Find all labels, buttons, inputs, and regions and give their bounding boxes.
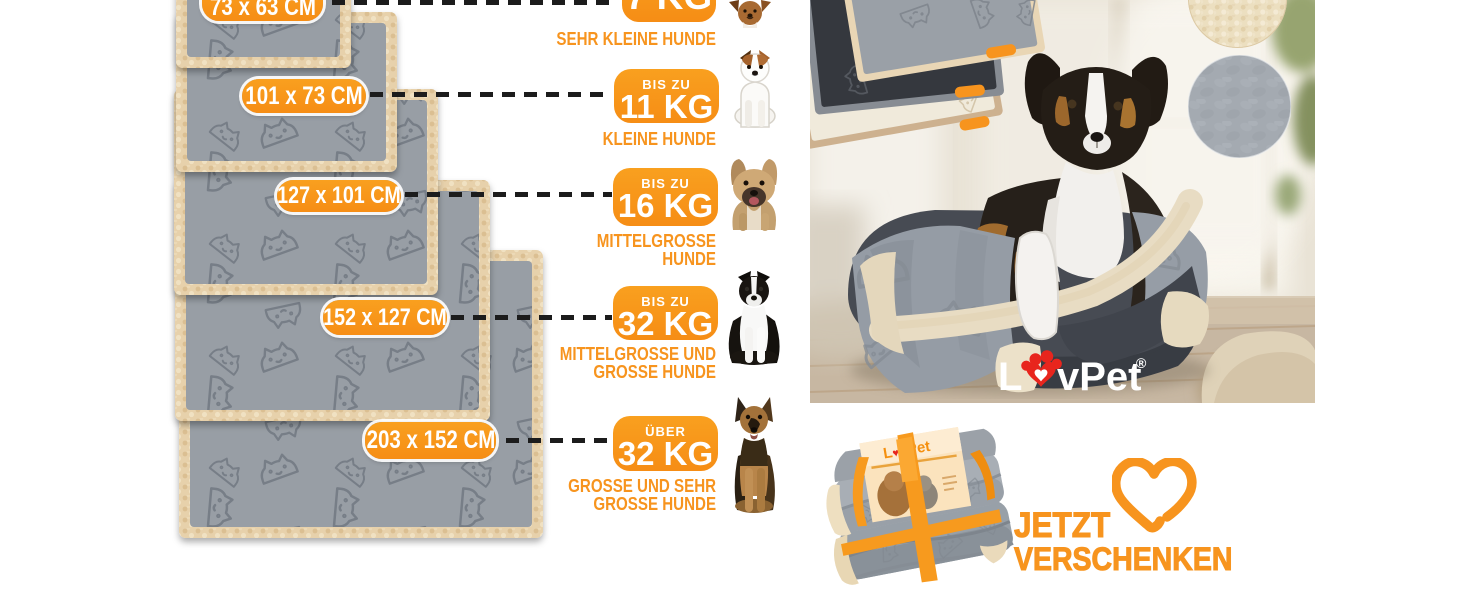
- svg-text:vPet: vPet: [1057, 355, 1142, 399]
- svg-text:®: ®: [1136, 355, 1147, 371]
- svg-text:L: L: [998, 355, 1022, 399]
